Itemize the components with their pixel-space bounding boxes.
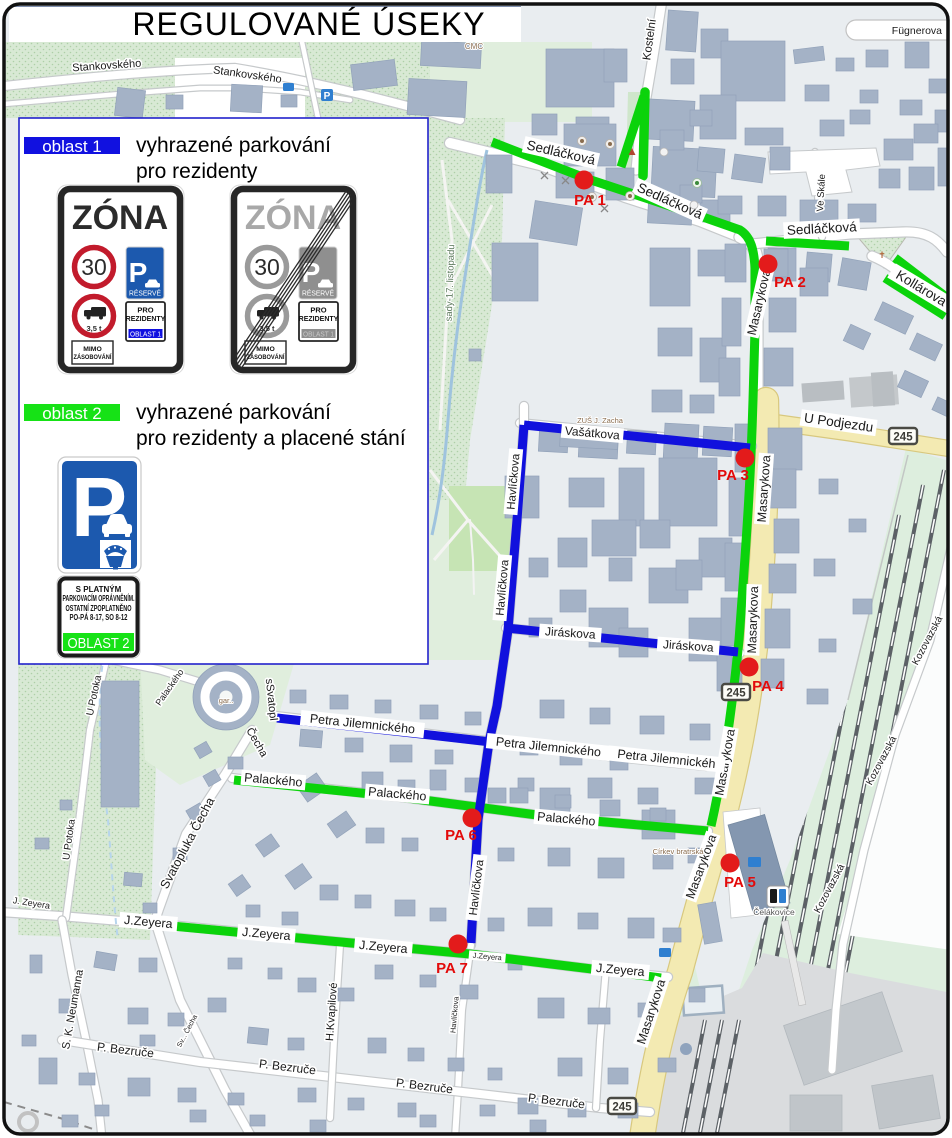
- svg-text:PA 1: PA 1: [574, 192, 606, 209]
- svg-text:PA 6: PA 6: [445, 827, 477, 844]
- svg-text:P: P: [71, 460, 127, 554]
- svg-text:REZIDENTY: REZIDENTY: [126, 316, 166, 323]
- svg-text:CMC: CMC: [465, 42, 483, 51]
- svg-text:P: P: [129, 257, 148, 288]
- svg-text:pro rezidenty: pro rezidenty: [136, 160, 258, 183]
- svg-text:245: 245: [612, 1102, 632, 1114]
- svg-text:OBLAST 1: OBLAST 1: [303, 330, 334, 339]
- svg-text:✝: ✝: [878, 250, 886, 260]
- svg-text:vyhrazené parkování: vyhrazené parkování: [136, 134, 331, 157]
- svg-text:oblast 2: oblast 2: [42, 404, 102, 423]
- svg-text:ZÓNA: ZÓNA: [72, 199, 168, 237]
- svg-text:PARKOVACÍM OPRÁVNĚNÍM.: PARKOVACÍM OPRÁVNĚNÍM.: [63, 594, 135, 603]
- svg-text:PA 7: PA 7: [436, 960, 468, 977]
- svg-text:RÉSERVÉ: RÉSERVÉ: [302, 289, 334, 298]
- svg-text:gar..: gar..: [219, 696, 234, 705]
- svg-text:PA 5: PA 5: [724, 874, 756, 891]
- svg-text:Čelákovice: Čelákovice: [753, 907, 795, 917]
- svg-text:245: 245: [726, 688, 746, 700]
- svg-text:OBLAST 2: OBLAST 2: [68, 635, 130, 652]
- svg-text:ZÁSOBOVÁNÍ: ZÁSOBOVÁNÍ: [247, 352, 286, 361]
- svg-text:OBLAST 1: OBLAST 1: [130, 330, 161, 339]
- svg-text:Ve Skále: Ve Skále: [815, 174, 828, 212]
- svg-text:PRO: PRO: [137, 306, 153, 315]
- svg-text:P: P: [324, 91, 331, 102]
- svg-text:PA 2: PA 2: [774, 274, 806, 291]
- svg-text:3,5 t: 3,5 t: [86, 324, 102, 333]
- svg-text:oblast 1: oblast 1: [42, 137, 102, 156]
- svg-text:REZIDENTY: REZIDENTY: [299, 316, 339, 323]
- svg-text:30: 30: [81, 254, 107, 280]
- svg-text:REGULOVANÉ ÚSEKY: REGULOVANÉ ÚSEKY: [132, 6, 485, 42]
- svg-text:S PLATNÝM: S PLATNÝM: [76, 585, 122, 594]
- svg-text:Církev bratrská: Církev bratrská: [653, 847, 705, 856]
- svg-text:MIMO: MIMO: [83, 346, 102, 353]
- svg-text:245: 245: [893, 432, 913, 444]
- svg-text:PRO: PRO: [310, 306, 326, 315]
- svg-text:30: 30: [254, 254, 280, 280]
- svg-text:MIMO: MIMO: [256, 346, 275, 353]
- svg-text:Fügnerova: Fügnerova: [892, 25, 942, 37]
- svg-text:PA 4: PA 4: [752, 678, 784, 695]
- svg-text:RÉSERVÉ: RÉSERVÉ: [129, 289, 161, 298]
- svg-text:ZÁSOBOVÁNÍ: ZÁSOBOVÁNÍ: [74, 352, 113, 361]
- svg-text:Masarykova: Masarykova: [745, 586, 761, 654]
- svg-text:ZUŠ J. Zacha: ZUŠ J. Zacha: [577, 416, 624, 425]
- svg-text:pro rezidenty a placené stání: pro rezidenty a placené stání: [136, 427, 406, 450]
- svg-text:PO-PÁ 8-17, SO 8-12: PO-PÁ 8-17, SO 8-12: [70, 613, 128, 622]
- svg-text:OSTATNÍ ZPOPLATNĚNO: OSTATNÍ ZPOPLATNĚNO: [66, 604, 132, 613]
- svg-text:vyhrazené parkování: vyhrazené parkování: [136, 401, 331, 424]
- svg-text:P: P: [302, 257, 321, 288]
- svg-text:PA 3: PA 3: [717, 467, 749, 484]
